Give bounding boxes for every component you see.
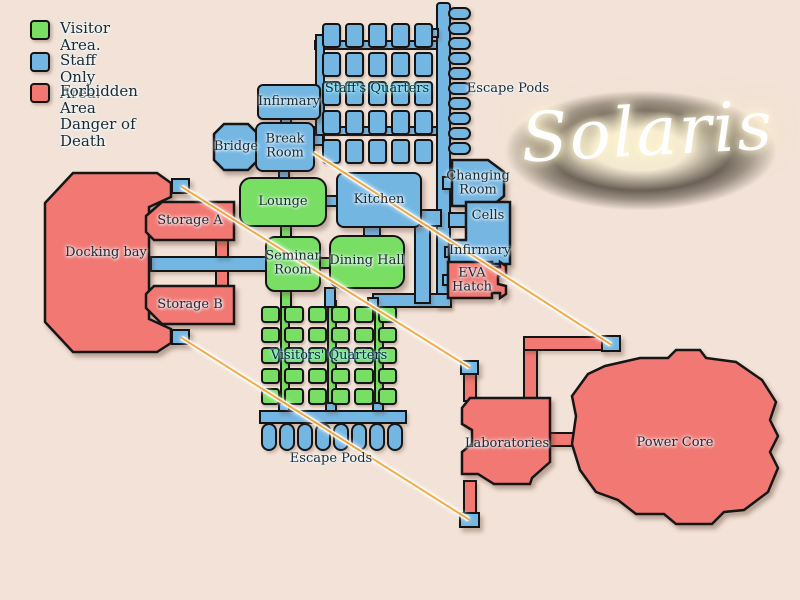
legend-visitor-swatch	[30, 20, 50, 40]
legend-visitor-row: Visitor Area.	[30, 20, 110, 53]
label-lounge: Lounge	[258, 195, 307, 209]
docking-bay-shape	[45, 173, 171, 352]
label-eva-hatch: EVA Hatch	[449, 266, 495, 293]
legend-forbidden-swatch	[30, 83, 50, 103]
label-visitors-quarters: Visitors' Quarters	[271, 349, 388, 363]
station-title: Solaris	[493, 85, 800, 180]
label-seminar-room: Seminar Room	[263, 249, 323, 276]
label-storage-a: Storage A	[157, 214, 222, 228]
label-laboratories: Laboratories	[465, 437, 549, 451]
escape-pods-bottom	[261, 423, 403, 451]
legend-forbidden-label: Forbidden Area Danger of Death	[60, 83, 138, 149]
station-map: Staff's Quarters Escape Pods Infirmary B…	[0, 0, 800, 600]
label-power-core: Power Core	[637, 436, 714, 450]
legend-visitor-label: Visitor Area.	[60, 20, 110, 53]
label-escape-pods-bottom: Escape Pods	[290, 452, 372, 466]
label-staff-quarters: Staff's Quarters	[325, 82, 429, 96]
label-infirmary-top: Infirmary	[258, 95, 320, 109]
label-infirmary-right: Infirmary	[449, 244, 511, 258]
legend-forbidden-line2: Danger of Death	[60, 116, 138, 149]
label-bridge: Bridge	[214, 140, 258, 154]
title-area: Solaris	[495, 85, 800, 230]
legend-forbidden-row: Forbidden Area Danger of Death	[30, 83, 138, 149]
label-kitchen: Kitchen	[354, 193, 405, 207]
legend-staff-swatch	[30, 52, 50, 72]
label-storage-b: Storage B	[157, 298, 223, 312]
label-break-room: Break Room	[261, 132, 309, 159]
label-dining-hall: Dining Hall	[329, 254, 404, 268]
legend-forbidden-line1: Forbidden Area	[60, 83, 138, 116]
label-docking-bay: Docking bay	[65, 246, 147, 260]
